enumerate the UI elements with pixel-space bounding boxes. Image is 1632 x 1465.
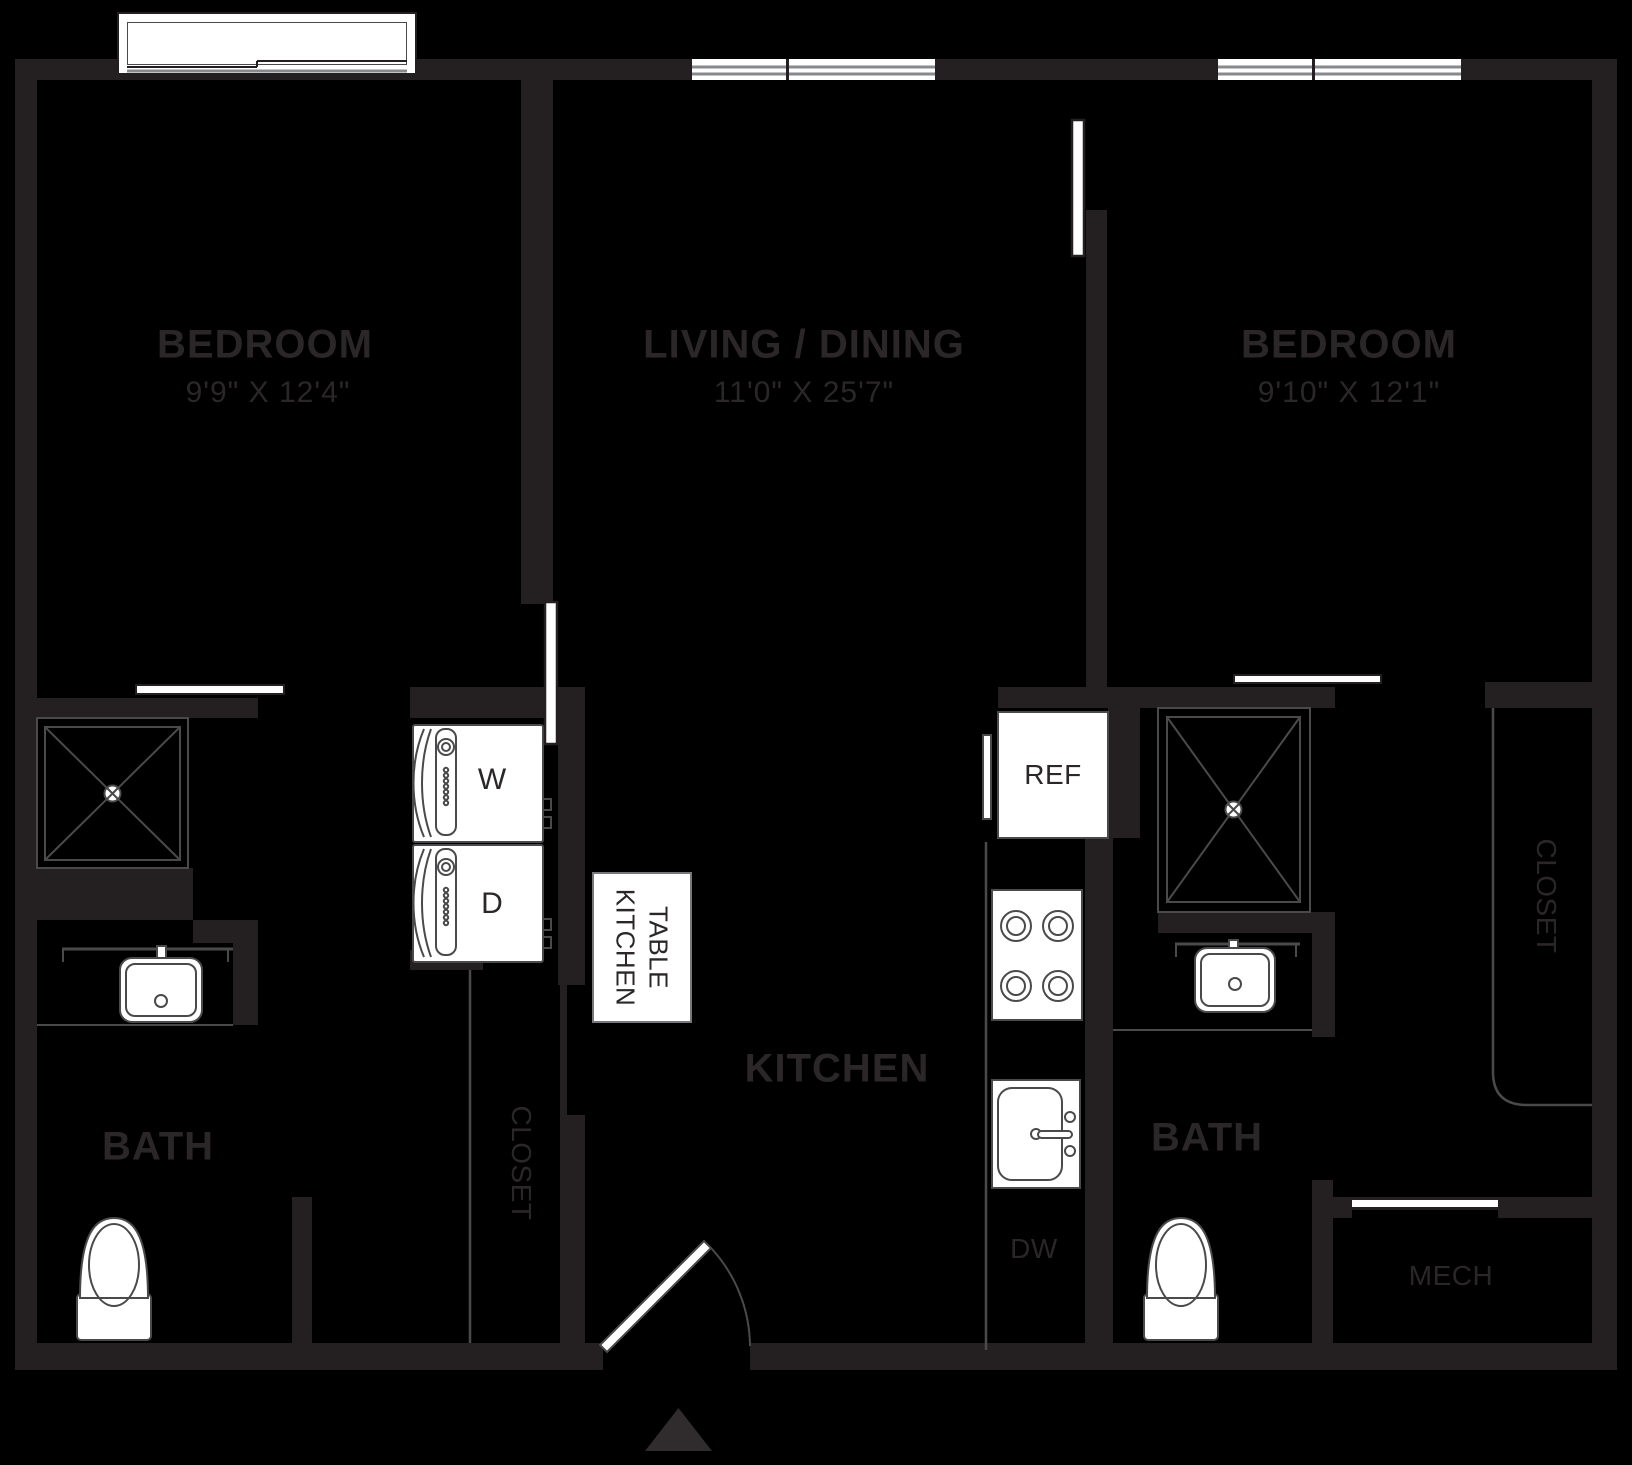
window-mech — [1352, 1197, 1498, 1210]
bedroom-left-dims: 9'9" X 12'4" — [186, 376, 351, 410]
wall-kitchen-right — [1085, 838, 1113, 1343]
kitchen-title: KITCHEN — [745, 1047, 930, 1092]
toilet-right — [1144, 1218, 1218, 1340]
wall-mech-top-right — [1498, 1197, 1593, 1218]
wall-bath-right-upper — [1312, 912, 1335, 1037]
kitchen-table-label: KITCHEN TABLE — [610, 889, 675, 1007]
wall-bedroom-right-divider — [1086, 210, 1107, 688]
closet-right-label: CLOSET — [1530, 838, 1562, 953]
window-bedroom-left-bottom — [135, 684, 285, 695]
kitchen-table-line2: TABLE — [642, 889, 675, 1007]
wall-kitchen-top — [998, 687, 1335, 708]
entry-door — [600, 1241, 750, 1352]
wall-bottom-right — [750, 1343, 1617, 1370]
bath-left-title: BATH — [102, 1125, 214, 1170]
bedroom-right-dims: 9'10" X 12'1" — [1258, 376, 1441, 410]
dryer-label: D — [481, 887, 503, 921]
vanity-left — [37, 946, 233, 1025]
shower-right — [1158, 708, 1310, 912]
closet-left-label: CLOSET — [505, 1105, 537, 1220]
living-dining-title: LIVING / DINING — [643, 323, 965, 368]
vanity-right — [1113, 940, 1312, 1030]
bedroom-left-title: BEDROOM — [157, 323, 373, 368]
toilet-left — [77, 1218, 151, 1340]
shower-left — [37, 718, 188, 868]
bath-right-title: BATH — [1151, 1116, 1263, 1161]
fixtures-layer — [0, 0, 1632, 1465]
wall-outer-left — [15, 59, 37, 1370]
wall-closet-left-thin — [560, 985, 567, 1115]
floor-plan: BEDROOM 9'9" X 12'4" LIVING / DINING 11'… — [0, 0, 1632, 1465]
wall-closet-left-lower — [560, 1115, 585, 1343]
kitchen-table: KITCHEN TABLE — [592, 872, 692, 1023]
washer-label: W — [478, 763, 506, 797]
ref-label: REF — [1024, 759, 1082, 791]
window-bedroom-left-top-inner — [127, 22, 407, 65]
mech-label: MECH — [1409, 1260, 1493, 1292]
stove — [992, 890, 1082, 1020]
wall-laundry-top — [410, 687, 585, 718]
window-bedroom-right-bottom — [1233, 674, 1382, 684]
wall-bath-left-under-shower — [37, 868, 193, 920]
wall-bath-right-lower — [1312, 1180, 1333, 1343]
dw-label: DW — [1010, 1233, 1058, 1265]
door-leaf-bedroom-right — [1072, 120, 1084, 256]
door-leaf-bedroom-left — [545, 602, 557, 744]
wall-closet-right-top — [1485, 682, 1593, 708]
wall-outer-right — [1592, 59, 1617, 1370]
wall-bath-left-vanity-right — [233, 943, 258, 1025]
wall-bedroom-left-bottom — [37, 698, 258, 718]
wall-mech-top-left — [1333, 1197, 1352, 1218]
wall-bedroom-left-divider — [521, 80, 553, 604]
wall-laundry-right — [558, 718, 585, 985]
window-living-top — [690, 59, 937, 80]
living-dining-dims: 11'0" X 25'7" — [714, 376, 894, 410]
wall-bath-left-step — [193, 920, 258, 943]
window-bedroom-right-top — [1216, 59, 1463, 80]
entry-marker-icon — [645, 1408, 712, 1451]
wall-laundry-bottom-stub — [410, 950, 483, 970]
wall-ref-right — [1108, 708, 1140, 838]
wall-bath-right-under-shower — [1158, 912, 1335, 933]
wall-bottom-left — [15, 1343, 603, 1370]
kitchen-sink — [992, 1080, 1080, 1188]
wall-bath-left-partition — [292, 1197, 312, 1343]
kitchen-table-line1: KITCHEN — [610, 889, 643, 1007]
bedroom-right-title: BEDROOM — [1241, 323, 1457, 368]
